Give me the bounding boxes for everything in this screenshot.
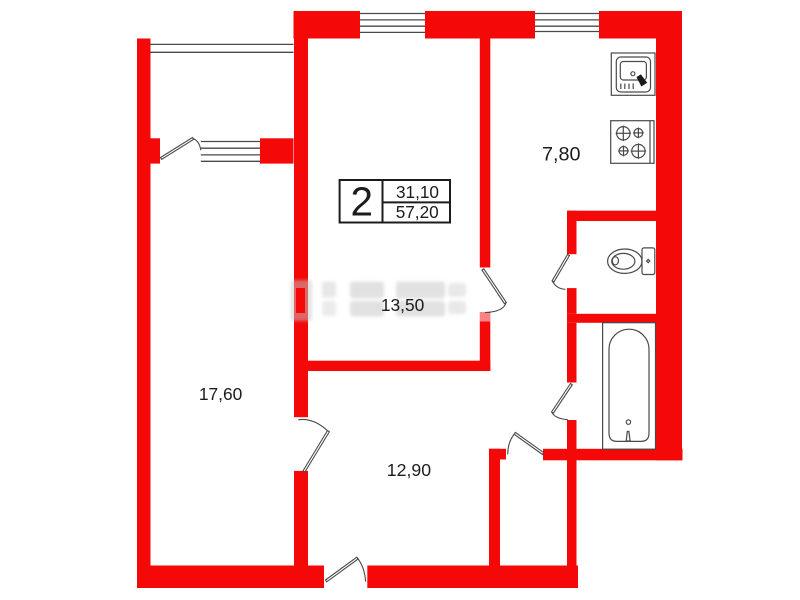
svg-text:7,80: 7,80	[542, 143, 581, 165]
svg-text:2: 2	[351, 179, 374, 225]
svg-text:57,20: 57,20	[396, 202, 439, 222]
svg-text:31,10: 31,10	[396, 182, 439, 202]
svg-text:13,50: 13,50	[381, 295, 425, 315]
svg-text:17,60: 17,60	[199, 384, 243, 404]
svg-text:12,90: 12,90	[387, 460, 431, 480]
